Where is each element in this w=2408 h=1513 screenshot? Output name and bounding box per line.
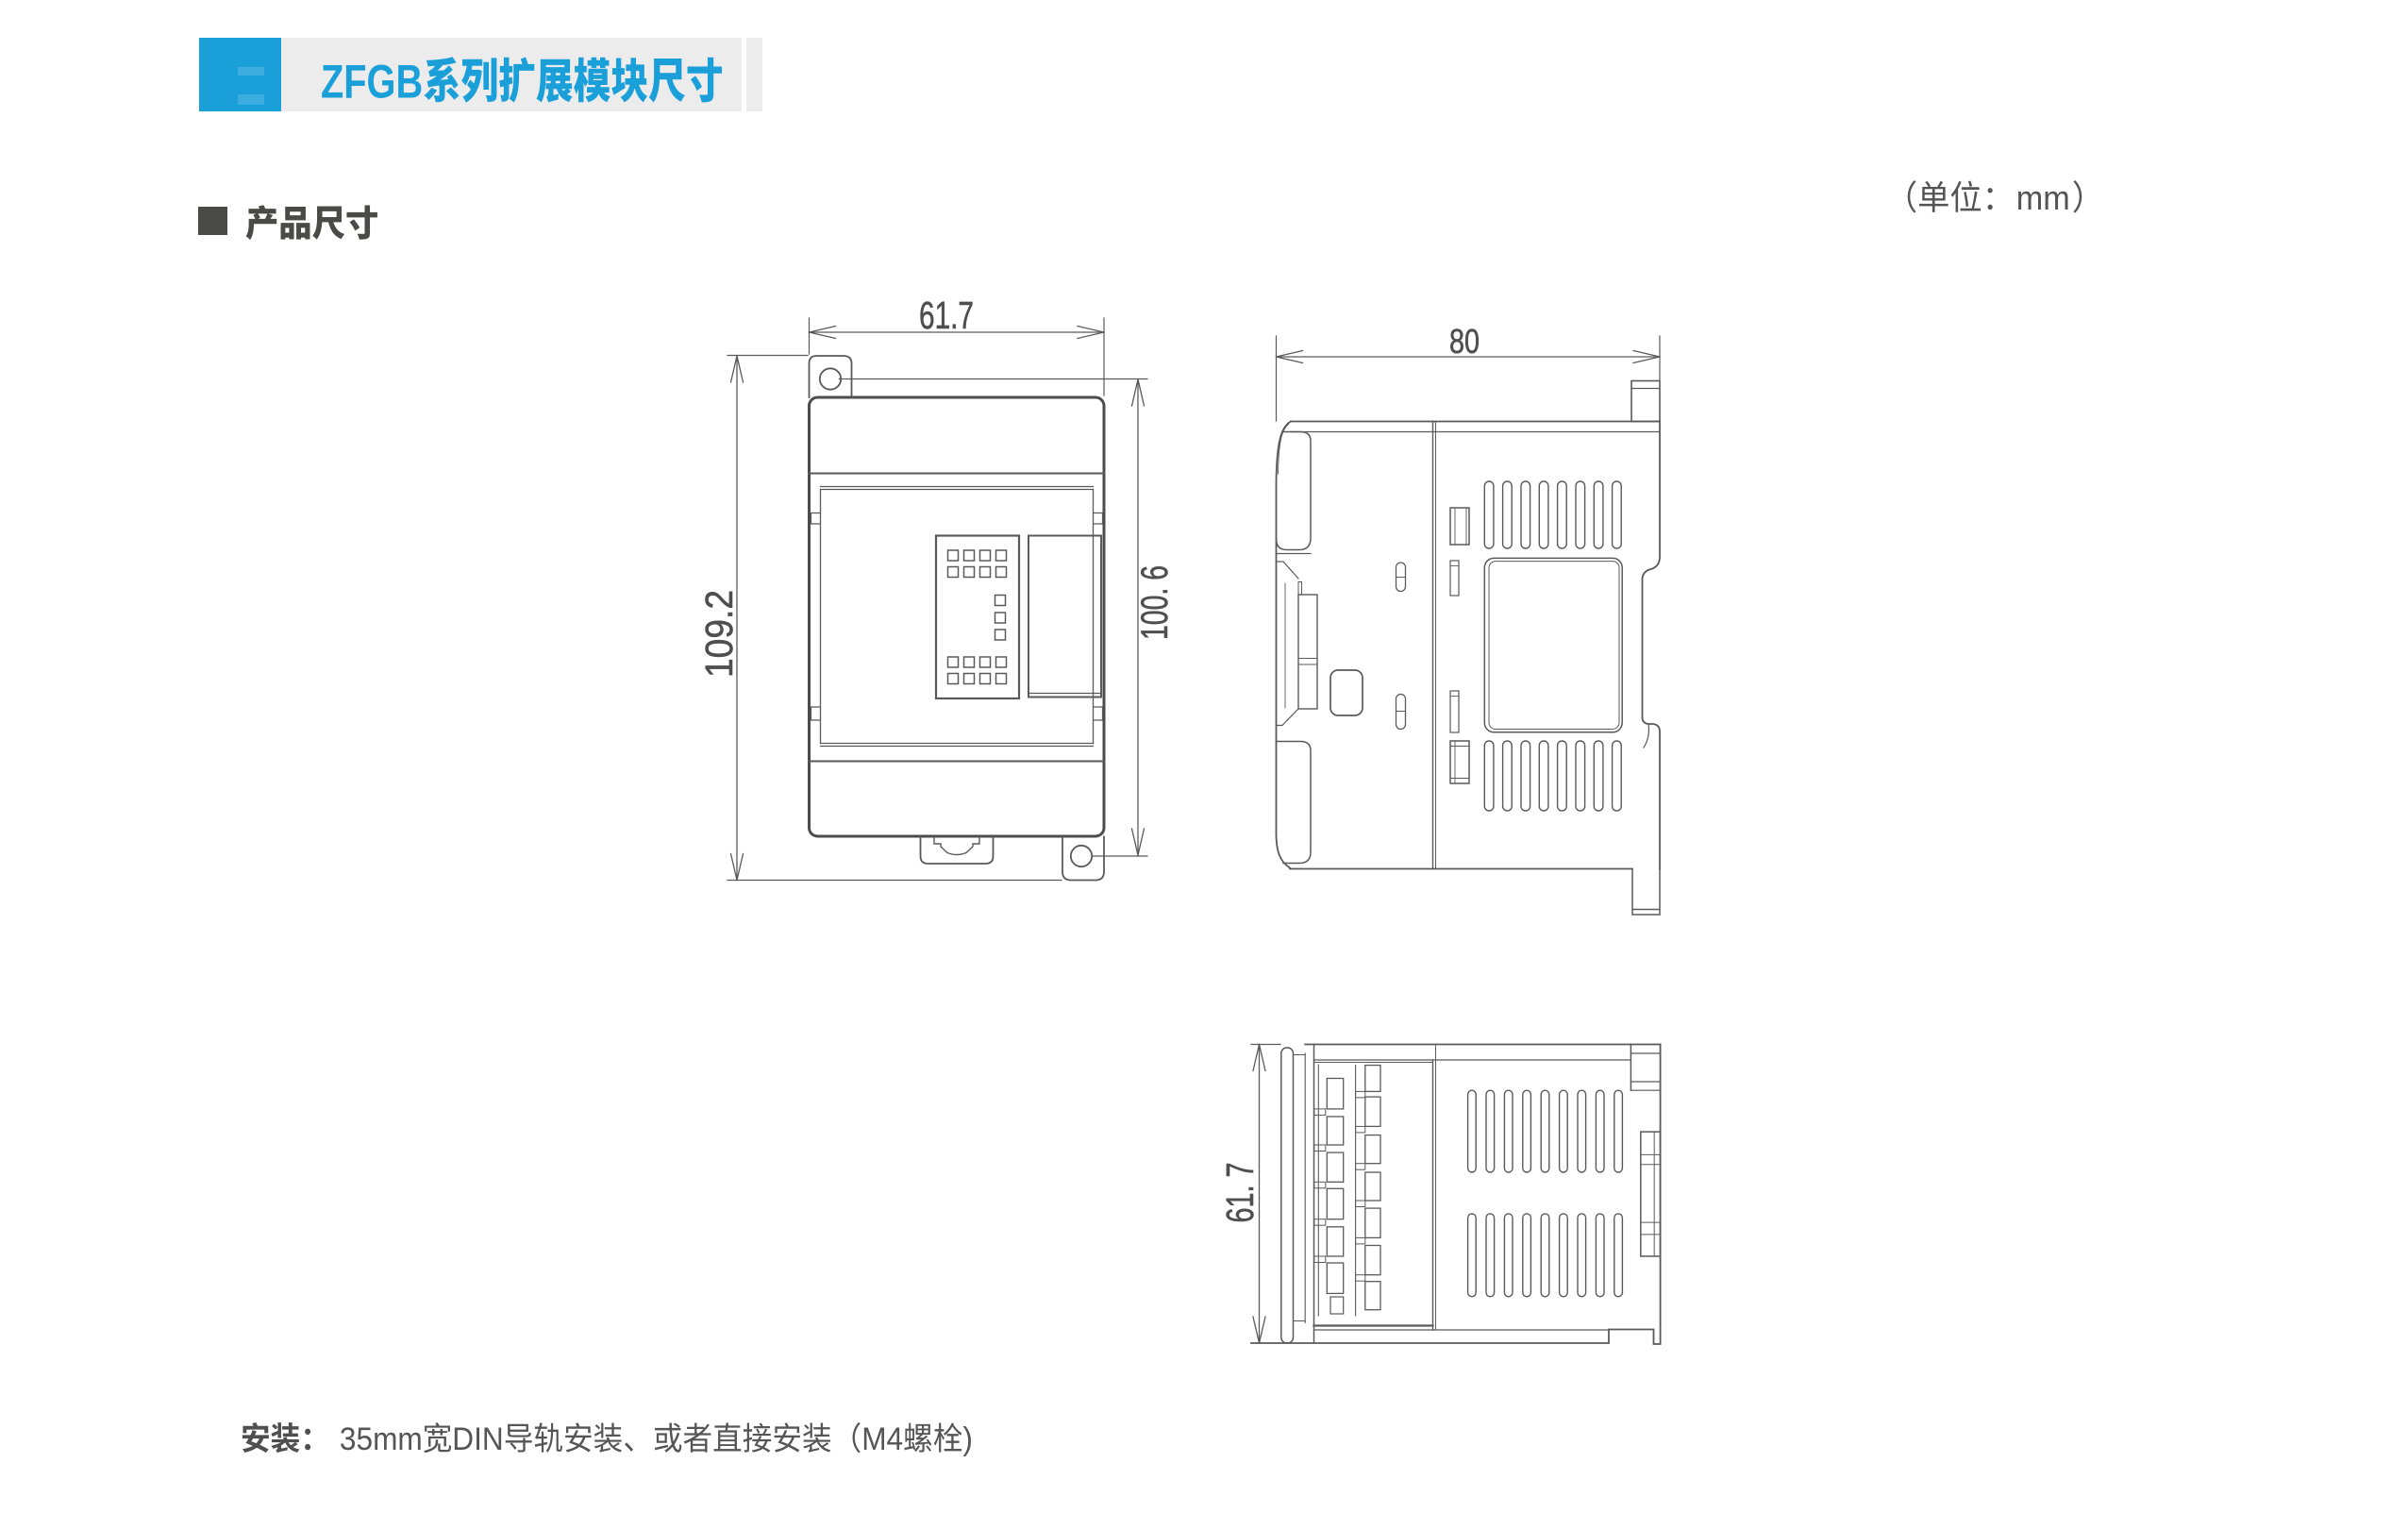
- svg-text:35mm: 35mm: [340, 1421, 423, 1456]
- svg-text:61.7: 61.7: [919, 294, 974, 337]
- svg-text:109.2: 109.2: [697, 590, 741, 678]
- svg-text:mm: mm: [2016, 179, 2070, 217]
- svg-text:80: 80: [1449, 323, 1480, 361]
- svg-text:61. 7: 61. 7: [1218, 1163, 1262, 1223]
- svg-text:ZFGB: ZFGB: [321, 55, 423, 108]
- svg-text:100. 6: 100. 6: [1134, 565, 1176, 640]
- svg-text:M4: M4: [861, 1421, 903, 1456]
- svg-text:): ): [962, 1421, 973, 1456]
- svg-text:DIN: DIN: [452, 1421, 503, 1456]
